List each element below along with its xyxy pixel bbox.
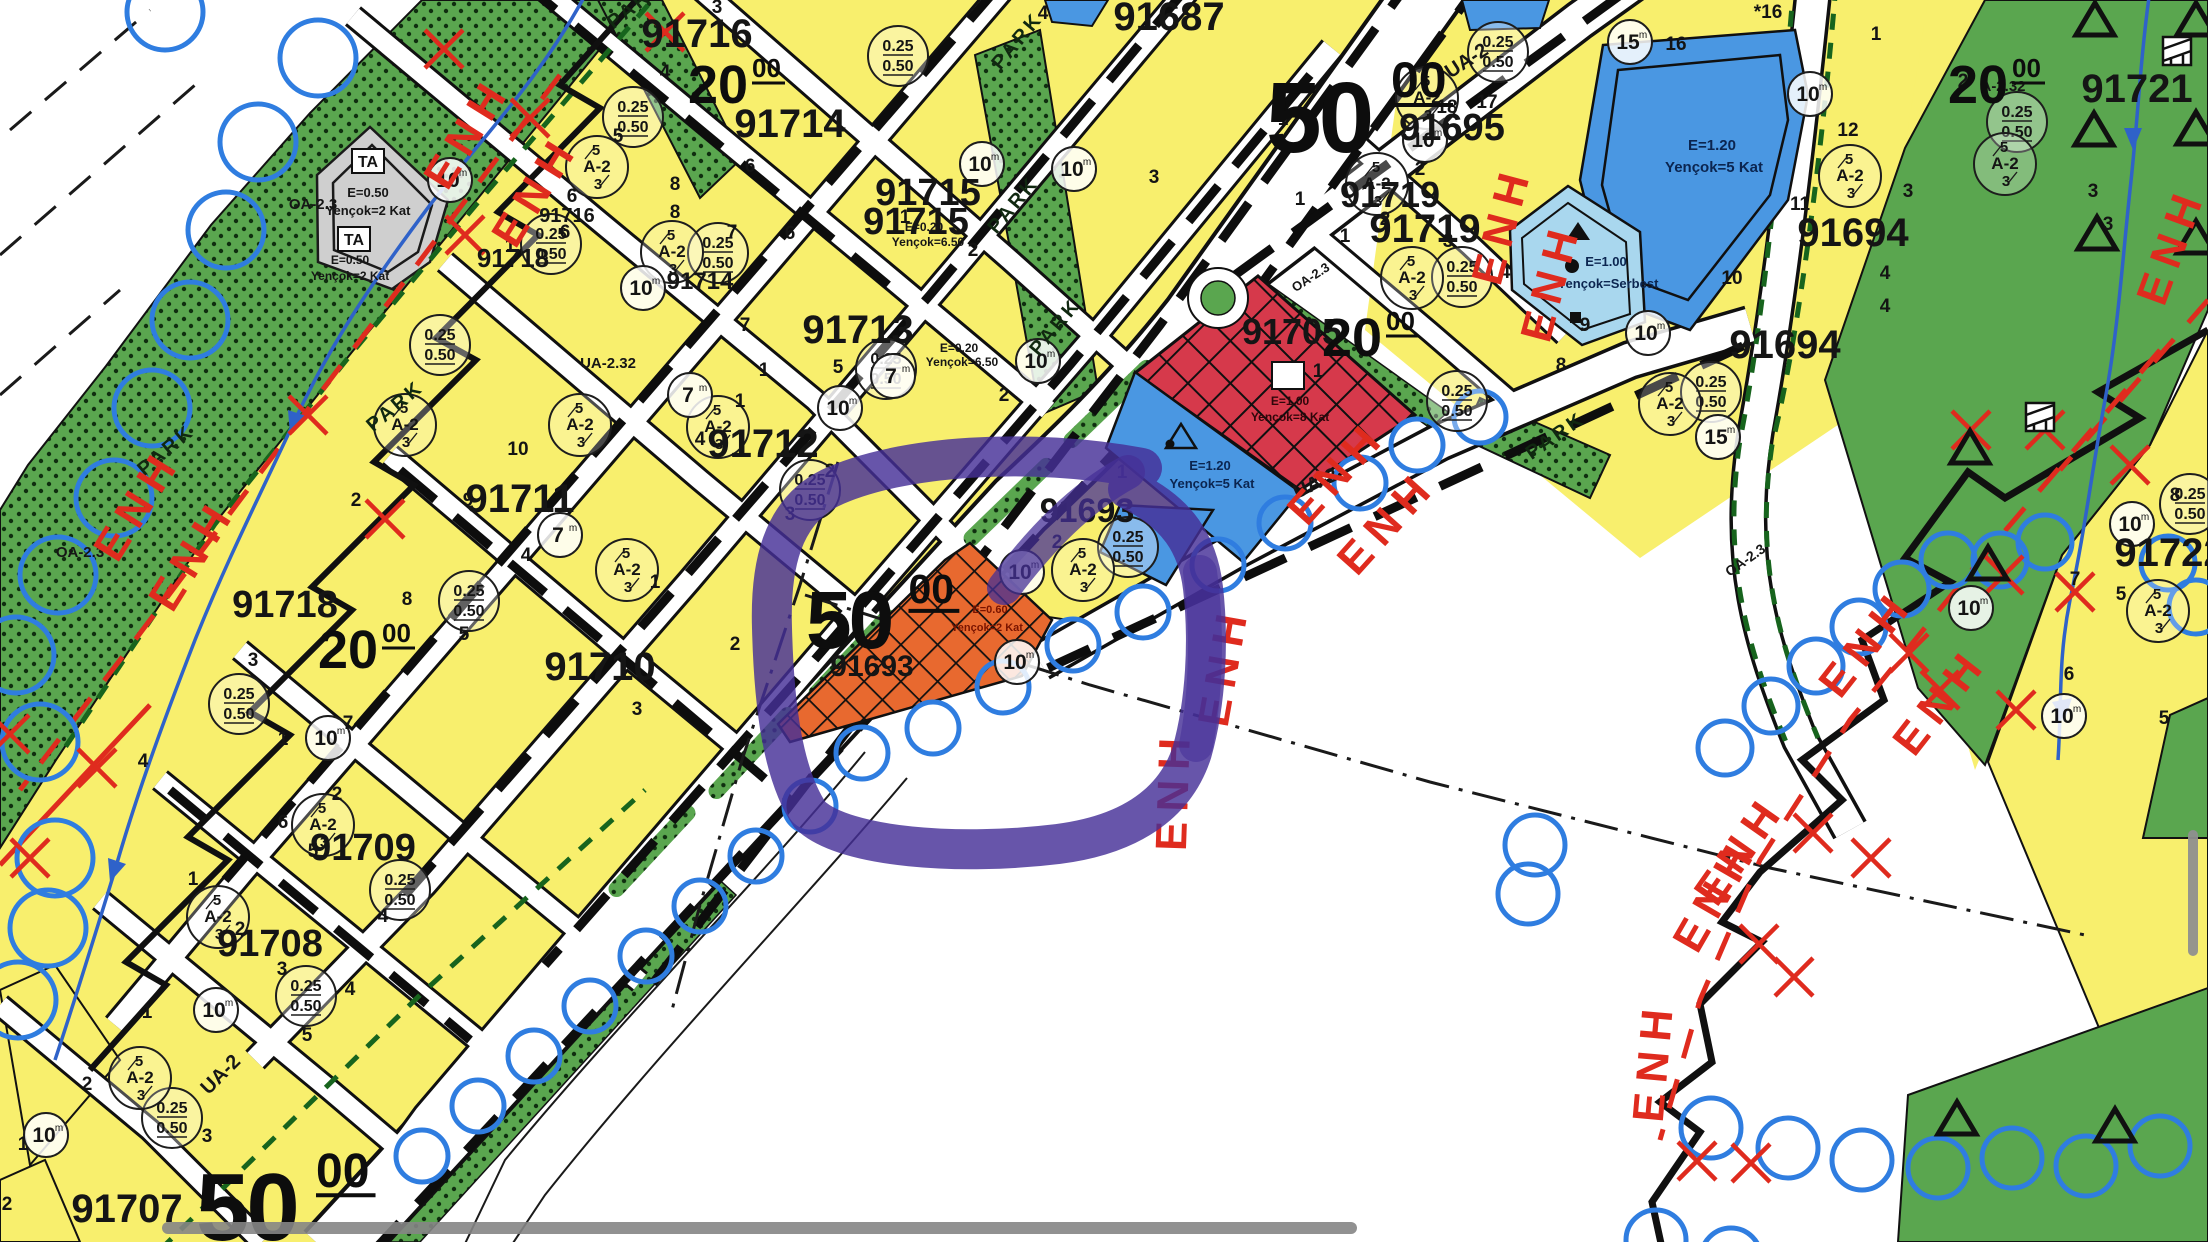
road-width-badge: 7m [668,373,712,417]
regulation-text: Yençok=5 Kat [1665,159,1763,176]
map-text: A-2 [583,157,610,176]
regulation-text: E=0.60 [972,604,1007,616]
map-text: A-2 [1656,394,1683,413]
building-icon [2163,37,2191,65]
map-text: 00 [382,618,411,648]
lot-number: 6 [560,222,571,243]
lot-number: 4 [138,751,149,772]
map-text: 0.50 [424,347,455,364]
map-text: 0.50 [156,1120,187,1137]
lot-number: 7 [343,713,354,734]
parcel-number: 91722 [2114,531,2208,575]
zoning-badge: 5A-23 [596,539,658,601]
lot-number: 5 [308,841,319,862]
lot-number: 1 [142,1002,153,1023]
lot-number: 1 [1871,24,1882,45]
map-text: 50 [806,575,892,666]
map-text: m [1639,30,1647,41]
road-width-badge: 10m [1626,311,1670,355]
parcel-number: 91687 [1113,0,1224,39]
map-text: 10 [202,999,225,1022]
parcel-number: 91713 [802,308,913,352]
map-text: A-2 [1991,154,2018,173]
road-width-badge: 10m [1052,147,1096,191]
lot-number: 8 [670,174,681,195]
lot-number: 5 [613,126,624,147]
road-width-badge: 10m [995,640,1039,684]
map-text: m [849,396,857,407]
map-text: 0.25 [1695,374,1726,391]
zoning-badge: 5A-23 [1381,247,1443,309]
map-text: 20 [688,55,748,115]
map-text: m [2073,704,2081,715]
map-text: 20 [1948,55,2008,115]
lot-number: 6 [2064,664,2075,685]
map-text: 10 [629,277,652,300]
regulation-text: E=1.00 [1271,394,1310,408]
zoning-badge: 5A-23 [1819,145,1881,207]
lot-number: 8 [670,202,681,223]
lot-number: 8 [402,589,413,610]
regulation-text: E=0.20 [940,341,979,355]
lot-number: 2 [1380,209,1391,230]
lot-number: 5 [2116,584,2127,605]
road-width-badge: 10m [818,386,862,430]
map-text: 10 [2050,705,2073,728]
density-badge: 0.250.50 [1427,371,1487,431]
road-width-badge: 10m [1949,586,1993,630]
lot-number: 2 [351,490,362,511]
road-width-badge: 10m [2042,694,2086,738]
map-text: 00 [1391,52,1447,108]
regulation-text: E=0.50 [331,253,370,267]
lot-number: 1 [650,572,661,593]
map-text: 0.50 [1112,549,1143,566]
lot-number: 3 [632,699,643,720]
map-text: m [225,998,233,1009]
map-text: m [1083,157,1091,168]
lot-number: 3 [1443,231,1454,252]
road-width-badge: 10m [24,1113,68,1157]
map-text: A-2 [126,1068,153,1087]
lot-number: 2 [235,919,246,940]
lot-number: 7 [727,222,738,243]
regulation-text: E=1.20 [1688,137,1736,154]
regulation-text: E=0.20 [905,220,944,234]
regulation-text: Yençok=6.50 [926,355,999,369]
map-text: 20 [1322,308,1382,368]
density-badge: 0.250.50 [2160,474,2208,534]
map-text: A-2 [658,242,685,261]
vertical-scrollbar[interactable] [2188,830,2198,956]
map-text: m [2141,512,2149,523]
lot-number: 7 [740,315,751,336]
map-text: 15 [1704,426,1728,449]
lot-number: 8 [2170,485,2181,506]
lot-number: 9 [1580,315,1591,336]
lot-number: 1 [1295,189,1306,210]
lot-number: 5 [2159,708,2170,729]
zoning-badge: 5A-23 [1639,373,1701,435]
map-text: 0.25 [290,978,321,995]
map-text: 0.25 [384,872,415,889]
map-text: 0.25 [882,38,913,55]
density-badge: 0.250.50 [209,674,269,734]
density-badge: 0.250.50 [868,26,928,86]
regulation-text: Yençok=5 Kat [1170,476,1256,491]
map-text: m [1980,596,1988,607]
lot-number: 6 [567,186,578,207]
parcel-number: 91694 [1797,211,1909,255]
map-text: 10 [1957,597,1980,620]
map-text: m [55,1123,63,1134]
lot-number: 4 [521,545,532,566]
map-text: 0.50 [223,706,254,723]
regulation-text: Yençok=2 Kat [326,203,412,218]
parcel-number: 91716 [641,12,752,56]
lot-number: 1 [188,869,199,890]
zoning-badge: 5A-23 [1974,133,2036,195]
lot-number: 10 [507,439,528,460]
regulation-text: E=1.00 [1585,254,1627,269]
map-text: A-2 [1069,560,1096,579]
ta-label: TA [344,232,365,249]
parcel-number: 91709 [310,827,416,869]
map-text: A-2 [1398,268,1425,287]
regulation-text: Yençok=6.50 [892,235,965,249]
lot-number: 5 [833,357,844,378]
regulation-text: E=1.20 [1189,458,1231,473]
map-text: 0.25 [223,686,254,703]
parcel-number: 91712 [707,422,818,466]
map-text: 20 [318,620,378,680]
zoning-badge: 5A-23 [109,1047,171,1109]
lot-number: 2 [332,784,343,805]
map-text: 0.25 [617,99,648,116]
parcel-number: 91714 [667,268,734,295]
symbol-box [1272,362,1304,389]
lot-number: 1 [735,391,746,412]
ta-label: TA [358,154,379,171]
regulation-text: Yençok=2 Kat [311,269,389,283]
map-text: 0.25 [1441,383,1472,400]
lot-number: 1 [1340,226,1351,247]
map-text: A-2 [566,415,593,434]
map-text: A-2 [1836,166,1863,185]
map-text: 0.25 [156,1100,187,1117]
lot-number: 16 [1665,34,1686,55]
lot-number: 3 [712,0,723,18]
lot-number: 4 [1880,263,1891,284]
lot-number: 3 [248,650,259,671]
lot-number: 1 [18,1134,29,1155]
parcel-number: 91710 [544,645,655,689]
map-text: 10 [314,727,337,750]
map-text: 0.50 [1441,403,1472,420]
map-text: 0.50 [290,998,321,1015]
building-icon [2026,403,2054,431]
regulation-text: UA-2.32 [580,355,636,372]
map-text: m [991,152,999,163]
map-text: 7 [682,384,694,407]
lot-number: 2 [999,385,1010,406]
road-width-badge: 15m [1608,20,1652,64]
map-text: 15 [1616,31,1640,54]
zoning-map: TATA0.250.500.250.500.250.500.250.500.25… [0,0,2208,1242]
lot-number: 6 [745,156,756,177]
density-badge: 0.250.50 [439,571,499,631]
lot-number: 7 [2070,569,2081,590]
lot-number: 3 [277,959,288,980]
regulation-text: OA-2.3 [289,196,337,213]
regulation-text: E=0.50 [347,185,389,200]
map-text: m [652,276,660,287]
lot-number: 3 [1903,181,1914,202]
lot-number: 9 [463,490,474,511]
lot-number: 12 [1837,120,1858,141]
map-text: 00 [1386,306,1415,336]
map-text: 10 [32,1124,55,1147]
parcel-number: 91721 [2081,67,2192,111]
regulation-text: Yençok=8 Kat [1251,410,1329,424]
map-text: 10 [1003,651,1026,674]
parcel-number: 91711 [465,477,574,521]
parcel-number: 91694 [1729,323,1841,367]
lot-number: 6 [278,812,289,833]
map-text: 0.25 [1112,529,1143,546]
road-width-badge: 15m [1696,415,1740,459]
lot-number: 2 [2,1194,13,1215]
map-text: m [1727,425,1735,436]
lot-number: 4 [1880,296,1891,317]
density-badge: 0.250.50 [410,315,470,375]
lot-number: 3 [2088,181,2099,202]
map-text: 10 [1796,83,1819,106]
lot-number: 4 [345,979,356,1000]
map-text: 00 [909,566,955,612]
map-text: m [1026,650,1034,661]
lot-number: 1 [278,729,289,750]
road-width-badge: 10m [621,266,665,310]
lot-number: 6 [785,223,796,244]
road-width-badge: 10m [194,988,238,1032]
map-text: 0.25 [453,583,484,600]
map-text: A-2 [613,560,640,579]
map-text: 0.50 [453,603,484,620]
map-text: 00 [752,53,781,83]
parcel-number: 91708 [217,923,323,965]
lot-number: 17 [1476,92,1497,113]
map-text: m [569,523,577,534]
lot-number: 4 [695,429,706,450]
map-text: 10 [1060,158,1083,181]
lot-number: 4 [660,62,671,83]
lot-number: 3 [1149,167,1160,188]
map-text: A-2 [2144,601,2171,620]
lot-number: 2 [82,1074,93,1095]
lot-number: 5 [302,1025,313,1046]
map-text: 0.25 [1482,34,1513,51]
map-text: 0.50 [882,58,913,75]
map-text: m [902,364,910,375]
map-text: 0.50 [1446,279,1477,296]
lot-number: 3 [2103,214,2114,235]
lot-number: 11 [1790,194,1811,215]
map-text: 00 [316,1145,369,1198]
lot-number: 2 [1415,159,1426,180]
map-text: m [1819,82,1827,93]
lot-number: 4 [378,906,389,927]
lot-number: *16 [1754,2,1783,23]
map-text: m [699,383,707,394]
lot-number: 3 [202,1126,213,1147]
horizontal-scrollbar[interactable] [162,1222,1357,1234]
map-text: 7 [885,365,897,388]
lot-number: 2 [968,240,979,261]
map-text: 7 [552,524,564,547]
map-viewport[interactable]: TATA0.250.500.250.500.250.500.250.500.25… [0,0,2208,1242]
map-text: 0.50 [384,892,415,909]
road-width-badge: 10m [1788,72,1832,116]
zoning-badge: 5A-23 [549,394,611,456]
map-text: 50 [1266,62,1371,174]
lot-number: 10 [1721,268,1742,289]
road-width-badge: 7m [871,354,915,398]
lot-number: 8 [1556,355,1567,376]
regulation-text: Yençok=2 Kat [951,622,1023,634]
map-text: 0.50 [2174,506,2205,523]
parcel-number: 91714 [734,102,846,146]
lot-number: 5 [459,624,470,645]
lot-number: 2 [730,634,741,655]
lot-number: 1 [759,360,770,381]
zoning-badge: 5A-23 [2127,580,2189,642]
map-text: m [1657,321,1665,332]
map-text: 0.25 [424,327,455,344]
map-text: 10 [1634,322,1657,345]
map-text: 10 [826,397,849,420]
map-text: 00 [2012,53,2041,83]
